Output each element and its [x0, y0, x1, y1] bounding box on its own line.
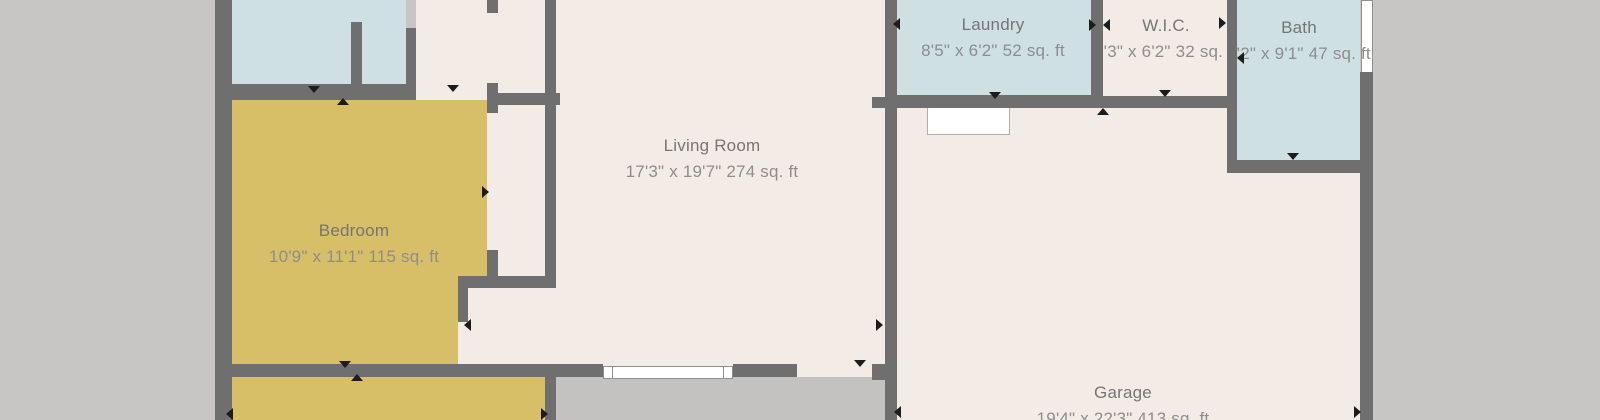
wall-closet-bottom [458, 276, 555, 288]
door-marker-icon [464, 319, 471, 331]
door-marker-icon [893, 18, 900, 30]
door-marker-icon [989, 92, 1001, 99]
wall-front-end [872, 364, 885, 380]
door-marker-icon [482, 186, 489, 198]
room-name: Bath [1227, 15, 1371, 41]
door-marker-icon [447, 85, 459, 92]
room-label-bath: Bath 5'2" x 9'1" 47 sq. ft [1227, 15, 1371, 67]
front-door-threshold [603, 366, 733, 379]
threshold-tick [723, 367, 724, 378]
door-marker-icon [337, 98, 349, 105]
room-dims: 8'5" x 6'2" 52 sq. ft [921, 38, 1065, 64]
wall-bath-bottom [1237, 160, 1373, 173]
room-dims: 5'2" x 9'1" 47 sq. ft [1227, 41, 1371, 67]
door-marker-icon [339, 361, 351, 368]
wall-front-segment [733, 364, 797, 377]
door-marker-icon [541, 408, 548, 420]
threshold-tick [612, 367, 613, 378]
room-name: Laundry [921, 12, 1065, 38]
door-marker-icon [1089, 19, 1096, 31]
porch-area [556, 377, 885, 420]
room-floor-top-left-bath [232, 0, 406, 85]
room-label-bedroom: Bedroom 10'9" x 11'1" 115 sq. ft [269, 218, 439, 270]
room-dims: 19'4" x 22'3" 413 sq. ft [1037, 406, 1210, 420]
room-floor-hallway [416, 0, 550, 100]
wall-stub [872, 97, 885, 108]
wall-stub [487, 83, 498, 113]
wall-exterior-right [1360, 72, 1373, 420]
room-name: Bedroom [269, 218, 439, 244]
wall-wic-bath [1227, 0, 1237, 173]
room-floor-bedroom2 [232, 377, 545, 420]
floor-plan: 7'9" x 7'10" 58 sq. ft Laundry 8'5" x 6'… [0, 0, 1600, 420]
door-marker-icon [351, 374, 363, 381]
room-floor-living-room [556, 0, 885, 377]
wall-laundry-wic [1091, 0, 1103, 108]
wall-bedroom-right [458, 288, 468, 322]
wall-bedroom-bottom [215, 364, 556, 377]
room-label-laundry: Laundry 8'5" x 6'2" 52 sq. ft [921, 12, 1065, 64]
door-marker-icon [308, 86, 320, 93]
room-label-living-room: Living Room 17'3" x 19'7" 274 sq. ft [626, 133, 799, 185]
door-marker-icon [1237, 52, 1244, 64]
wall-front-segment [556, 364, 603, 377]
door-marker-icon [1103, 19, 1110, 31]
door-marker-icon [1287, 153, 1299, 160]
door-marker-icon [226, 408, 233, 420]
appliance-block [927, 107, 1010, 135]
door-marker-icon [1219, 17, 1226, 29]
room-label-wic: W.I.C. 5'3" x 6'2" 32 sq. ft [1094, 13, 1238, 65]
wall-stub [487, 0, 498, 13]
wall-garage-left [885, 0, 897, 420]
wall-wic-bottom [1103, 96, 1237, 108]
door-marker-icon [894, 406, 901, 418]
room-dims: 10'9" x 11'1" 115 sq. ft [269, 244, 439, 270]
door-marker-icon [1097, 108, 1109, 115]
door-marker-icon [1354, 406, 1361, 418]
room-name: Garage [1037, 380, 1210, 406]
door-marker-icon [876, 319, 883, 331]
room-label-garage: Garage 19'4" x 22'3" 413 sq. ft [1037, 380, 1210, 420]
wall-exterior-left [215, 0, 232, 420]
wall-divider [351, 22, 362, 100]
door-marker-icon [1159, 90, 1171, 97]
room-name: W.I.C. [1094, 13, 1238, 39]
room-floor-hall-pocket [458, 288, 556, 365]
room-dims: 17'3" x 19'7" 274 sq. ft [626, 159, 799, 185]
room-dims: 5'3" x 6'2" 32 sq. ft [1094, 39, 1238, 65]
wall-living-left [545, 0, 556, 288]
wall-divider [406, 28, 416, 100]
room-name: Living Room [626, 133, 799, 159]
door-marker-icon [854, 360, 866, 367]
